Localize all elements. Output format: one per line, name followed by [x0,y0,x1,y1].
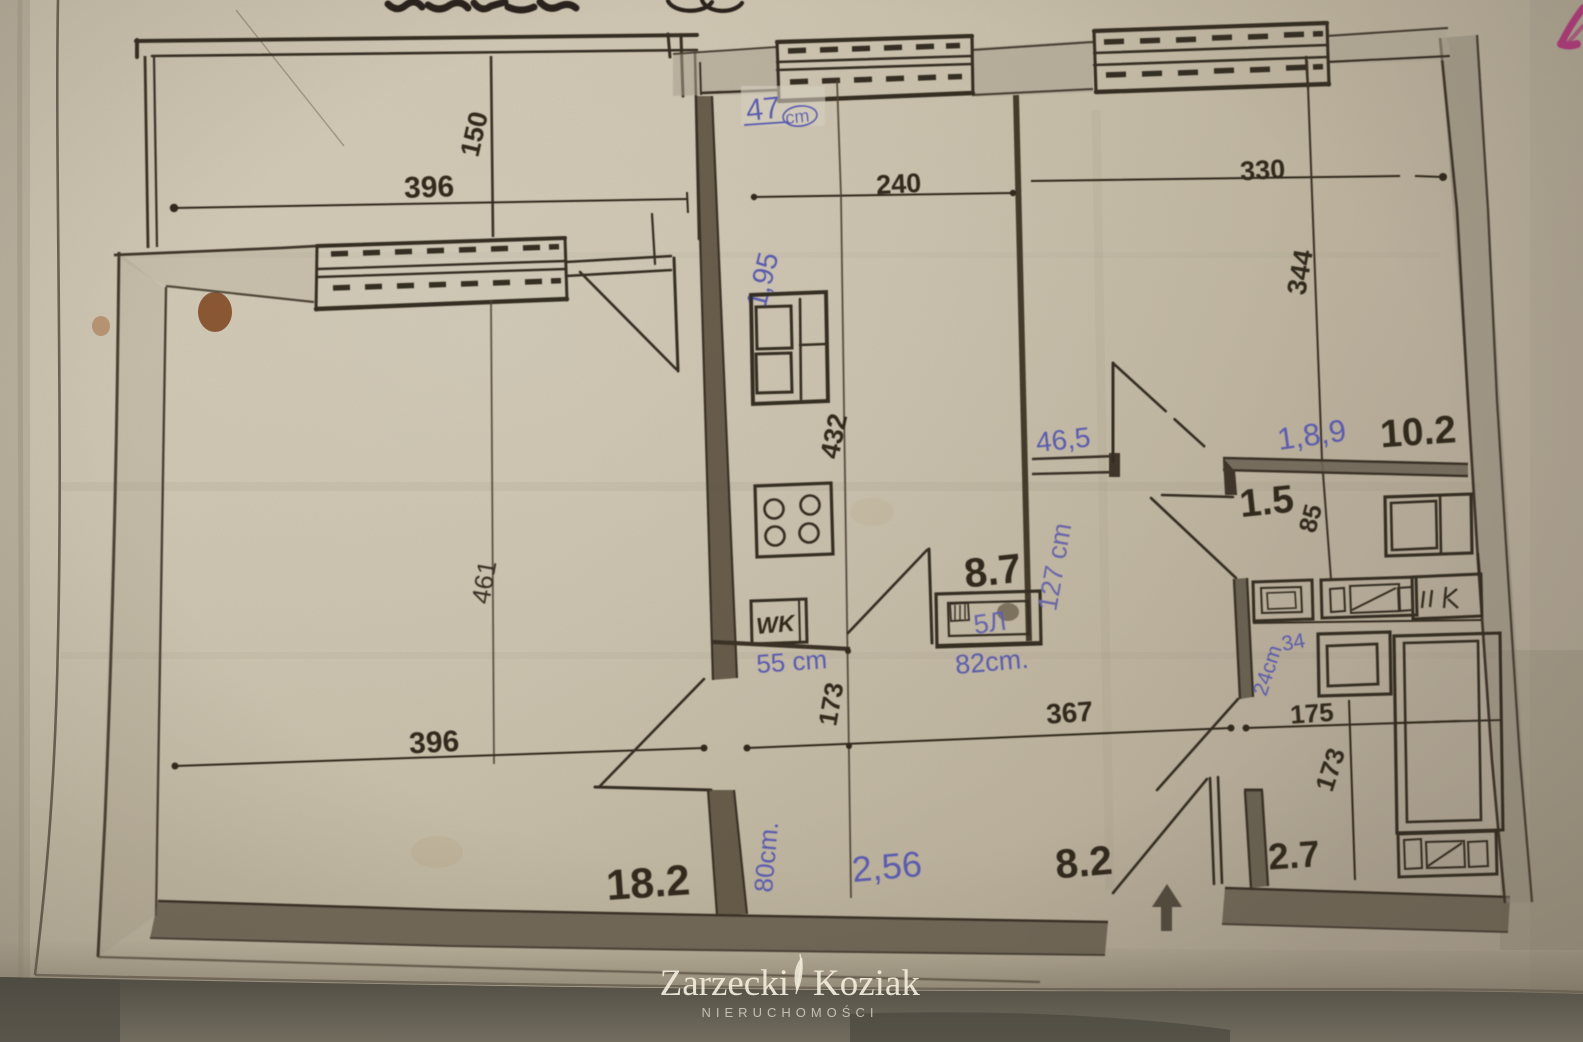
svg-text:46,5: 46,5 [1034,421,1091,458]
svg-text:175: 175 [1289,697,1334,730]
svg-text:18.2: 18.2 [605,856,692,910]
svg-text:Koziak: Koziak [813,963,920,1004]
svg-text:367: 367 [1045,696,1094,730]
svg-text:8.7: 8.7 [962,545,1023,597]
svg-text:WK: WK [755,610,797,639]
svg-text:34: 34 [1280,629,1307,656]
svg-text:NIERUCHOMOŚCI: NIERUCHOMOŚCI [702,1005,879,1020]
svg-text:396: 396 [408,725,460,761]
svg-text:Zarzecki: Zarzecki [660,963,789,1004]
svg-text:240: 240 [875,168,922,200]
svg-text:330: 330 [1239,154,1286,186]
svg-text:82cm.: 82cm. [954,644,1030,680]
svg-text:8.2: 8.2 [1053,837,1114,888]
svg-text:1.5: 1.5 [1237,478,1295,526]
svg-text:80cm.: 80cm. [748,820,784,893]
svg-text:5Л: 5Л [972,606,1009,640]
svg-text:55 cm: 55 cm [755,644,828,679]
svg-text:2,56: 2,56 [850,843,923,890]
svg-text:10.2: 10.2 [1379,408,1458,456]
svg-text:2.7: 2.7 [1267,833,1321,877]
svg-text:396: 396 [404,170,455,205]
